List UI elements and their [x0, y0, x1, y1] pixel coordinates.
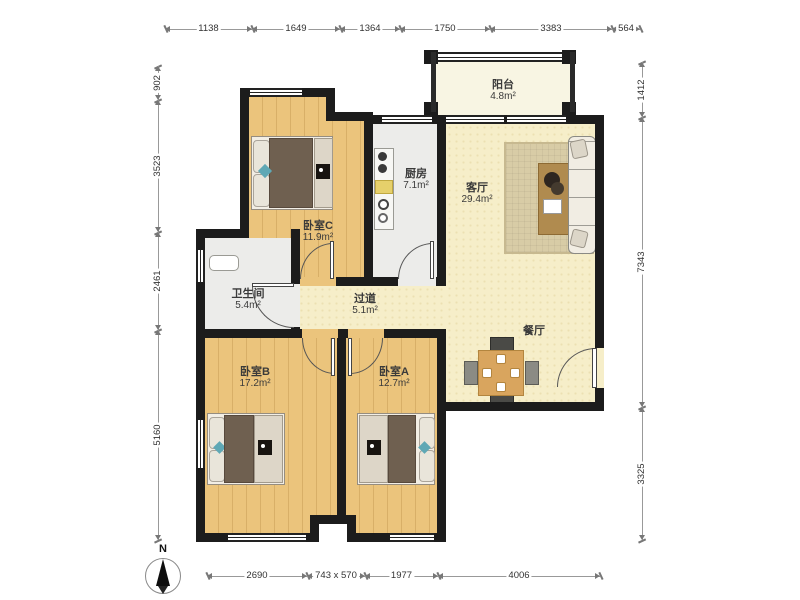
bedroomC-duvet [269, 138, 313, 208]
dim-segment: 1364 [340, 24, 400, 34]
dim-label: 4006 [506, 571, 531, 581]
balcony-side-wall [570, 52, 575, 112]
dim-arrow [340, 26, 345, 32]
dim-label: 3383 [538, 24, 563, 34]
dim-label: 3523 [153, 153, 163, 178]
dim-arrow [155, 66, 161, 71]
room-name: 餐厅 [523, 325, 545, 337]
dim-arrow [595, 573, 600, 579]
table-tray [543, 199, 562, 214]
room-area: 29.4m² [461, 194, 492, 206]
pillow [253, 174, 270, 207]
dim-arrow [438, 573, 443, 579]
dim-segment: 902 [153, 66, 163, 100]
dim-segment: 3523 [153, 100, 163, 232]
room-label-dining: 餐厅 [523, 325, 545, 337]
room-name: 厨房 [403, 168, 429, 180]
room-name: 过道 [352, 293, 378, 305]
room-label-bedroomC: 卧室C 11.9m² [303, 220, 333, 244]
room-label-balcony: 阳台 4.8m² [490, 79, 516, 103]
room-name: 卫生间 [232, 288, 265, 300]
dim-arrow [639, 407, 645, 412]
dim-arrow [639, 117, 645, 122]
door-gap [348, 329, 384, 338]
dim-segment: 1750 [400, 24, 490, 34]
shaft-opening [319, 524, 347, 542]
wall [240, 88, 249, 238]
dim-segment: 1412 [637, 62, 647, 117]
dim-segment: 3325 [637, 407, 647, 540]
plate [496, 354, 506, 364]
dimension-chain-bottom: 2690743 x 57019774006 [207, 571, 600, 581]
stove-burner [378, 152, 387, 161]
dim-label: 2690 [244, 571, 269, 581]
bedroomA-duvet [388, 415, 416, 483]
dim-label: 743 x 570 [313, 571, 359, 581]
bedroomA-window [390, 533, 434, 542]
north-label: N [155, 543, 171, 555]
bathroom-window [196, 250, 205, 282]
balcony-side-wall [431, 52, 436, 112]
bedroomB-duvet [224, 415, 254, 483]
compass-needle-south [158, 586, 168, 594]
wall [364, 112, 373, 286]
dim-segment: 2461 [153, 232, 163, 330]
entry-door [592, 348, 597, 388]
dim-label: 1364 [357, 24, 382, 34]
compass-needle-north [156, 559, 170, 586]
bedroomC-door [330, 241, 334, 279]
table-plant [551, 182, 564, 195]
dim-arrow [490, 26, 495, 32]
bedroomC-tv [316, 164, 330, 179]
room-label-hallway: 过道 5.1m² [352, 293, 378, 317]
bedroomB-door [331, 338, 335, 376]
dim-segment: 3383 [490, 24, 612, 34]
room-area: 11.9m² [303, 232, 333, 244]
room-area: 4.8m² [490, 91, 516, 103]
dim-segment: 2690 [207, 571, 307, 581]
kitchen-pot [378, 213, 388, 223]
room-label-bathroom: 卫生间 5.4m² [232, 288, 265, 312]
dim-segment: 1649 [252, 24, 340, 34]
dim-label: 1138 [196, 24, 220, 34]
dim-arrow [639, 535, 645, 540]
dim-label: 1412 [637, 77, 647, 102]
plate [496, 382, 506, 392]
wall [196, 229, 205, 338]
dim-segment: 1138 [165, 24, 252, 34]
dining-chair [525, 361, 539, 385]
sofa-cushion [569, 139, 588, 160]
dim-segment: 5160 [153, 330, 163, 540]
dim-arrow [207, 573, 212, 579]
room-label-bedroomB: 卧室B 17.2m² [239, 366, 270, 390]
kitchen-window [382, 115, 432, 124]
balcony-window [438, 52, 562, 62]
kitchen-door [430, 241, 434, 279]
dim-label: 902 [153, 73, 163, 93]
dim-label: 1649 [283, 24, 308, 34]
room-name: 卧室A [378, 366, 409, 378]
room-area: 12.7m² [378, 378, 409, 390]
room-name: 客厅 [461, 182, 492, 194]
dim-label: 5160 [153, 422, 163, 447]
room-label-living: 客厅 29.4m² [461, 182, 492, 206]
shaft-wall [347, 515, 356, 542]
dim-segment: 743 x 570 [307, 571, 365, 581]
dim-arrow [155, 330, 161, 335]
dim-segment: 4006 [438, 571, 600, 581]
dim-arrow [155, 100, 161, 105]
dim-arrow [252, 26, 257, 32]
room-label-bedroomA: 卧室A 12.7m² [378, 366, 409, 390]
room-name: 卧室B [239, 366, 270, 378]
room-name: 阳台 [490, 79, 516, 91]
room-area: 5.4m² [232, 300, 265, 312]
dim-arrow [365, 573, 370, 579]
room-label-kitchen: 厨房 7.1m² [403, 168, 429, 192]
dim-arrow [155, 535, 161, 540]
dim-arrow [307, 573, 312, 579]
room-area: 7.1m² [403, 180, 429, 192]
wall [337, 329, 346, 542]
cutting-board [375, 180, 393, 194]
bathtub [209, 255, 239, 271]
dim-segment: 7343 [637, 117, 647, 407]
stove-burner [378, 164, 387, 173]
kitchen-sink [378, 199, 389, 210]
bedroomB-tv [258, 440, 272, 455]
pillow [419, 450, 435, 482]
dim-arrow [165, 26, 170, 32]
wall [437, 402, 604, 411]
wall [437, 115, 446, 286]
dim-segment: 1977 [365, 571, 438, 581]
bedroomB-window [228, 533, 306, 542]
exterior-notch [335, 85, 364, 114]
dim-label: 1977 [389, 571, 414, 581]
floor-plan: 阳台 4.8m² 厨房 7.1m² 客厅 29.4m² 卧室C 11.9m² 卫… [0, 0, 800, 600]
bedroomA-tv [367, 440, 381, 455]
shaft-wall [310, 515, 319, 542]
dining-chair [490, 337, 514, 351]
dim-arrow [639, 62, 645, 67]
bedroomB-side-window [196, 420, 205, 468]
dim-label: 1750 [432, 24, 457, 34]
dim-label: 564 [616, 24, 636, 34]
sliding-door-divider [504, 115, 507, 124]
plate [482, 368, 492, 378]
wall [437, 329, 446, 542]
dim-label: 3325 [637, 461, 647, 486]
room-area: 17.2m² [239, 378, 270, 390]
dining-chair [464, 361, 478, 385]
plate [510, 368, 520, 378]
dim-arrow [155, 232, 161, 237]
door-gap [302, 329, 338, 338]
dim-arrow [400, 26, 405, 32]
dim-label: 2461 [153, 268, 163, 293]
dimension-chain-right: 141273433325 [637, 62, 647, 540]
dim-label: 7343 [637, 249, 647, 274]
room-area: 5.1m² [352, 305, 378, 317]
dimension-chain-left: 902352324615160 [153, 66, 163, 540]
pillow [209, 450, 225, 482]
dimension-chain-top: 11381649136417503383564 [165, 24, 640, 34]
bedroomA-door [348, 338, 352, 376]
bathroom-door [252, 283, 294, 287]
bedroomC-window [250, 88, 302, 97]
dim-segment: 564 [612, 24, 640, 34]
room-name: 卧室C [303, 220, 333, 232]
